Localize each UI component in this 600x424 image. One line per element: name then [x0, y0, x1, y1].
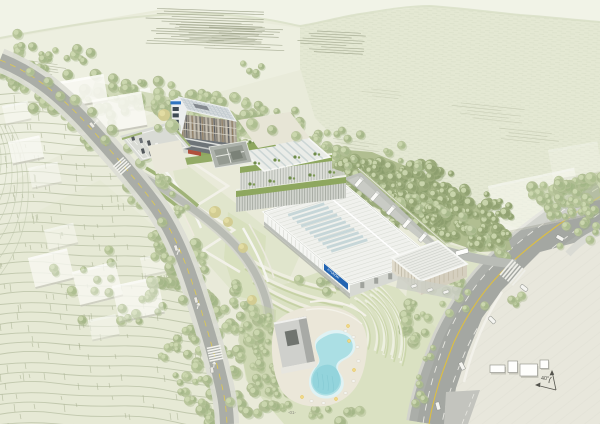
svg-text:-01-: -01- [288, 410, 297, 415]
svg-text:40°: 40° [541, 376, 549, 382]
